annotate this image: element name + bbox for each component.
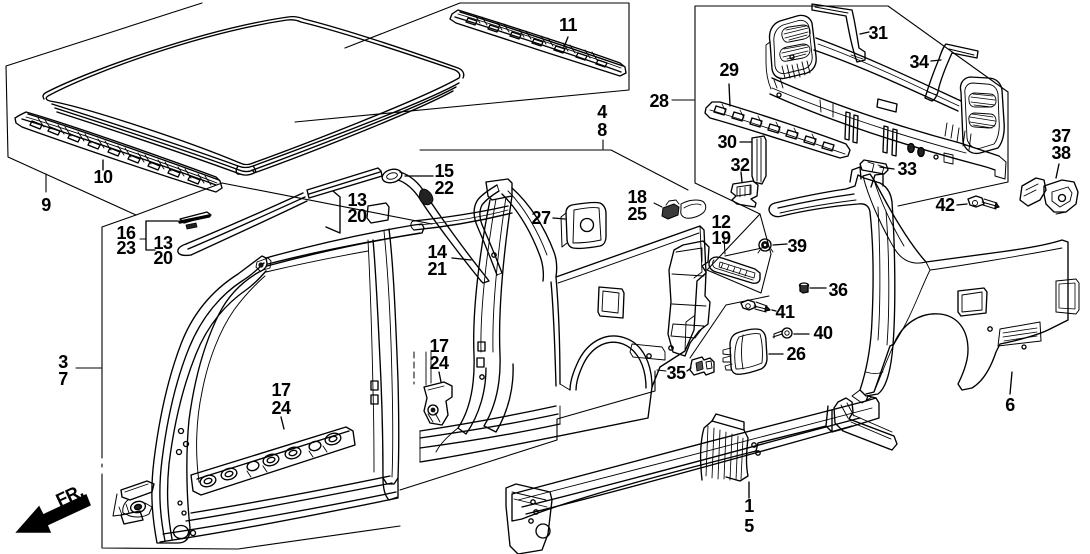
svg-text:27: 27: [531, 208, 551, 228]
svg-text:4: 4: [597, 102, 607, 122]
svg-text:22: 22: [434, 178, 454, 198]
svg-text:31: 31: [868, 23, 888, 43]
svg-text:19: 19: [711, 228, 731, 248]
svg-text:42: 42: [935, 195, 955, 215]
svg-text:29: 29: [719, 60, 739, 80]
svg-text:28: 28: [649, 91, 669, 111]
svg-text:10: 10: [93, 167, 113, 187]
svg-text:38: 38: [1051, 143, 1071, 163]
svg-text:41: 41: [775, 302, 795, 322]
svg-text:24: 24: [271, 398, 291, 418]
svg-text:20: 20: [347, 206, 367, 226]
svg-text:40: 40: [813, 323, 833, 343]
svg-text:17: 17: [271, 380, 291, 400]
svg-text:1: 1: [744, 496, 754, 516]
svg-text:32: 32: [730, 155, 750, 175]
svg-text:33: 33: [897, 159, 917, 179]
svg-text:20: 20: [153, 248, 173, 268]
svg-text:36: 36: [828, 280, 848, 300]
svg-text:21: 21: [427, 259, 447, 279]
svg-text:30: 30: [717, 132, 737, 152]
svg-text:5: 5: [744, 516, 754, 536]
svg-text:26: 26: [786, 344, 806, 364]
svg-text:23: 23: [116, 238, 136, 258]
svg-text:7: 7: [58, 369, 68, 389]
svg-text:25: 25: [627, 204, 647, 224]
svg-text:34: 34: [909, 52, 929, 72]
svg-text:24: 24: [429, 353, 449, 373]
svg-text:8: 8: [597, 120, 607, 140]
svg-text:35: 35: [666, 363, 686, 383]
svg-text:9: 9: [41, 195, 51, 215]
svg-text:39: 39: [787, 236, 807, 256]
svg-text:11: 11: [559, 15, 578, 35]
svg-text:6: 6: [1005, 395, 1015, 415]
